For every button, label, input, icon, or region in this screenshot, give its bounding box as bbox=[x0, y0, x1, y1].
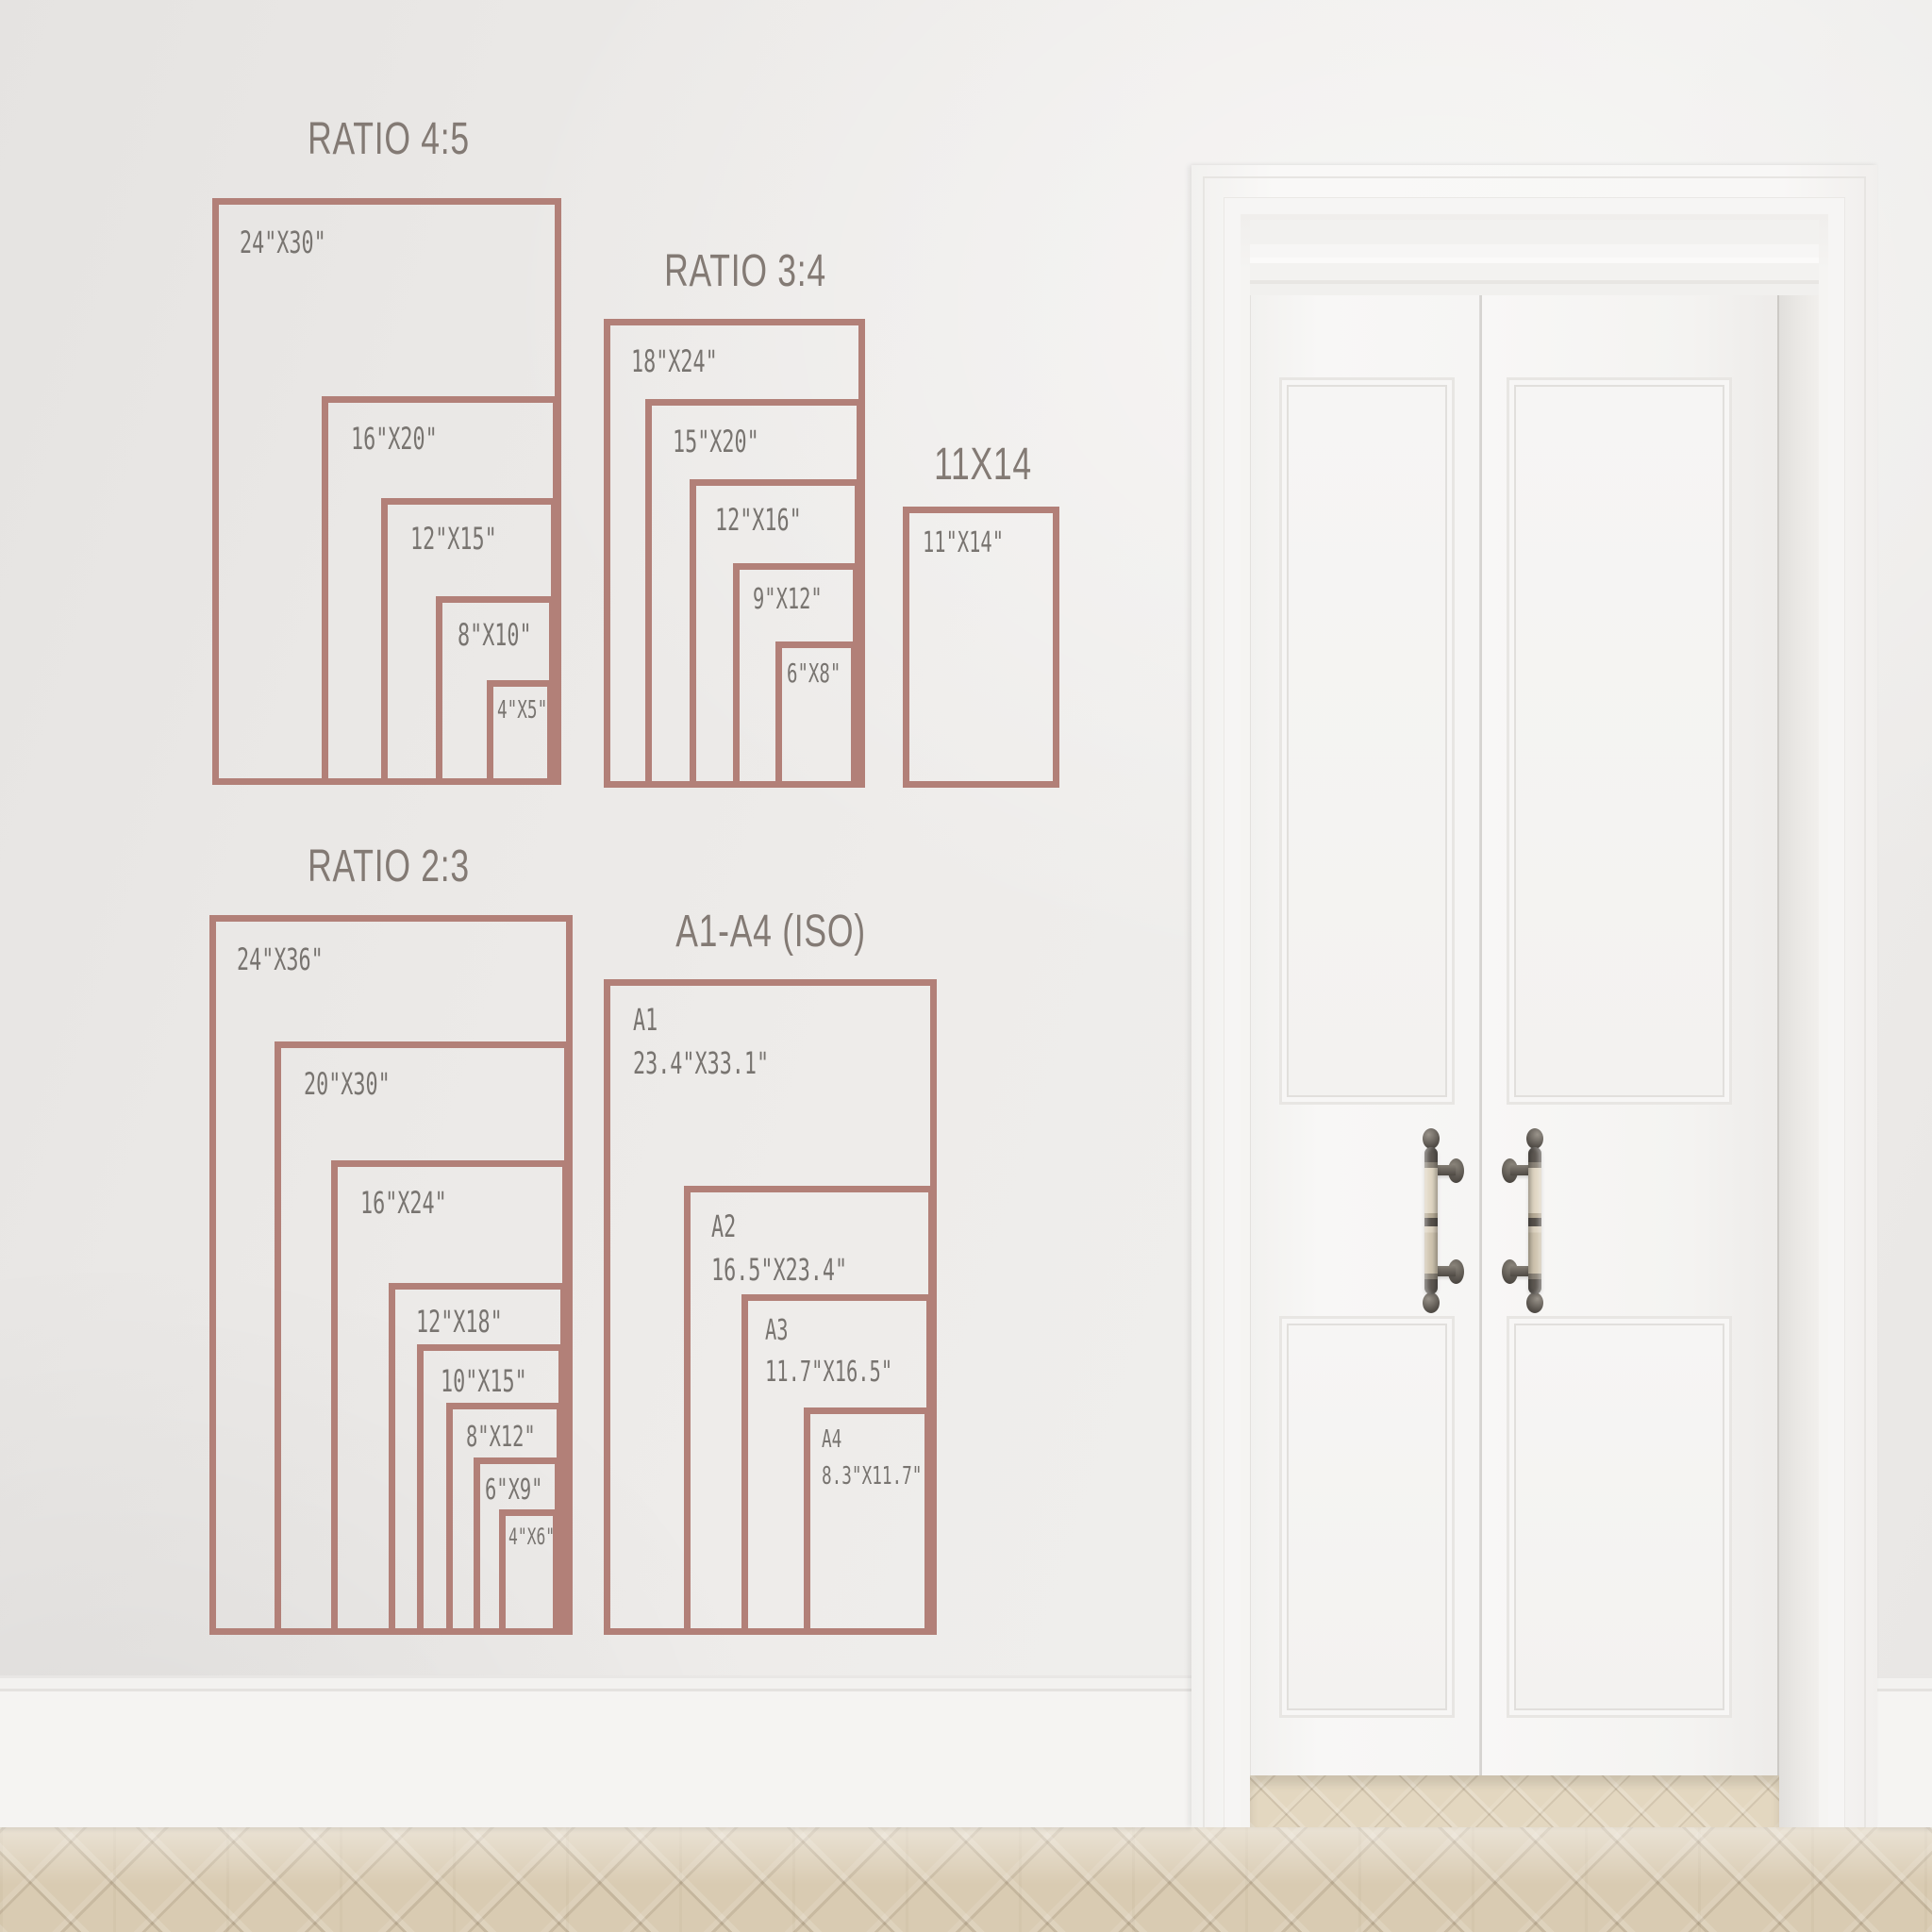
size-box-s11x14-0: 11"X14" bbox=[903, 507, 1059, 788]
size-box-label: 12"X15" bbox=[410, 524, 538, 556]
herringbone-floor bbox=[0, 1827, 1932, 1932]
doorway-recess bbox=[1250, 220, 1819, 1827]
room-scene: RATIO 4:5 RATIO 3:4 11X14 RATIO 2:3 A1-A… bbox=[0, 0, 1932, 1932]
size-box-label: 10"X15" bbox=[441, 1366, 568, 1398]
baseboard-left bbox=[0, 1675, 1191, 1827]
size-box-label: 18"X24" bbox=[631, 346, 758, 378]
size-box-ratio-3-4-4: 6"X8" bbox=[775, 641, 858, 788]
size-box-label: 16"X20" bbox=[351, 424, 478, 456]
size-box-label: A216.5"X23.4" bbox=[711, 1211, 911, 1286]
handle-finial bbox=[1423, 1292, 1440, 1313]
door-panel-upper-left bbox=[1279, 377, 1455, 1105]
door-leaf-right bbox=[1480, 295, 1782, 1775]
size-group-ratio-4-5: 24"X30"16"X20"12"X15"8"X10"4"X5" bbox=[212, 198, 561, 785]
size-box-label: A311.7"X16.5" bbox=[765, 1316, 953, 1387]
door-panel-lower-left bbox=[1279, 1316, 1455, 1718]
size-box-label: A48.3"X11.7" bbox=[822, 1427, 970, 1491]
handle-grip bbox=[1424, 1147, 1438, 1294]
door-leaf-left bbox=[1250, 295, 1480, 1775]
size-group-title-11x14: 11X14 bbox=[917, 439, 1049, 491]
door-frame bbox=[1191, 165, 1877, 1827]
size-box-label: 4"X6" bbox=[508, 1525, 576, 1549]
handle-finial bbox=[1526, 1128, 1543, 1149]
size-group-title-ratio-4-5: RATIO 4:5 bbox=[279, 113, 498, 165]
door-handle-right bbox=[1516, 1128, 1554, 1313]
door-jamb-right bbox=[1777, 295, 1819, 1827]
size-box-ratio-2-3-7: 4"X6" bbox=[499, 1509, 559, 1635]
size-box-label: A123.4"X33.1" bbox=[633, 1005, 833, 1079]
doorway-floor bbox=[1250, 1775, 1779, 1827]
size-group-ratio-2-3: 24"X36"20"X30"16"X24"12"X18"10"X15"8"X12… bbox=[209, 915, 573, 1635]
size-group-title-a-series: A1-A4 (ISO) bbox=[642, 906, 899, 958]
size-box-label: 4"X5" bbox=[497, 698, 571, 724]
size-box-label: 24"X36" bbox=[237, 944, 364, 976]
size-box-label: 11"X14" bbox=[923, 528, 1041, 558]
size-box-label: 12"X16" bbox=[715, 505, 842, 537]
size-box-label: 8"X10" bbox=[458, 620, 567, 652]
size-group-a-series: A123.4"X33.1"A216.5"X23.4"A311.7"X16.5"A… bbox=[604, 979, 937, 1635]
size-group-11x14: 11"X14" bbox=[903, 507, 1059, 788]
door-panel-lower-right bbox=[1507, 1316, 1732, 1718]
size-box-label: 16"X24" bbox=[360, 1188, 488, 1220]
size-box-a-series-3: A48.3"X11.7" bbox=[804, 1407, 931, 1635]
size-box-label: 8"X12" bbox=[466, 1423, 568, 1453]
size-group-title-ratio-2-3: RATIO 2:3 bbox=[279, 841, 498, 892]
handle-finial bbox=[1423, 1128, 1440, 1149]
size-box-label: 24"X30" bbox=[240, 227, 367, 259]
door-handle-left bbox=[1412, 1128, 1450, 1313]
size-box-label: 6"X8" bbox=[787, 659, 866, 687]
baseboard-right bbox=[1877, 1675, 1932, 1827]
size-box-label: 15"X20" bbox=[673, 426, 800, 458]
size-box-label: 6"X9" bbox=[485, 1475, 570, 1506]
size-box-label: 20"X30" bbox=[304, 1069, 431, 1101]
handle-finial bbox=[1526, 1292, 1543, 1313]
handle-grip bbox=[1528, 1147, 1541, 1294]
door-lintel-cornice bbox=[1250, 220, 1819, 295]
size-box-label: 12"X18" bbox=[416, 1307, 543, 1339]
size-group-title-ratio-3-4: RATIO 3:4 bbox=[636, 245, 855, 297]
door-panel-upper-right bbox=[1507, 377, 1732, 1105]
size-box-ratio-4-5-4: 4"X5" bbox=[487, 680, 554, 785]
size-group-ratio-3-4: 18"X24"15"X20"12"X16"9"X12"6"X8" bbox=[604, 319, 865, 788]
size-box-label: 9"X12" bbox=[753, 585, 855, 615]
